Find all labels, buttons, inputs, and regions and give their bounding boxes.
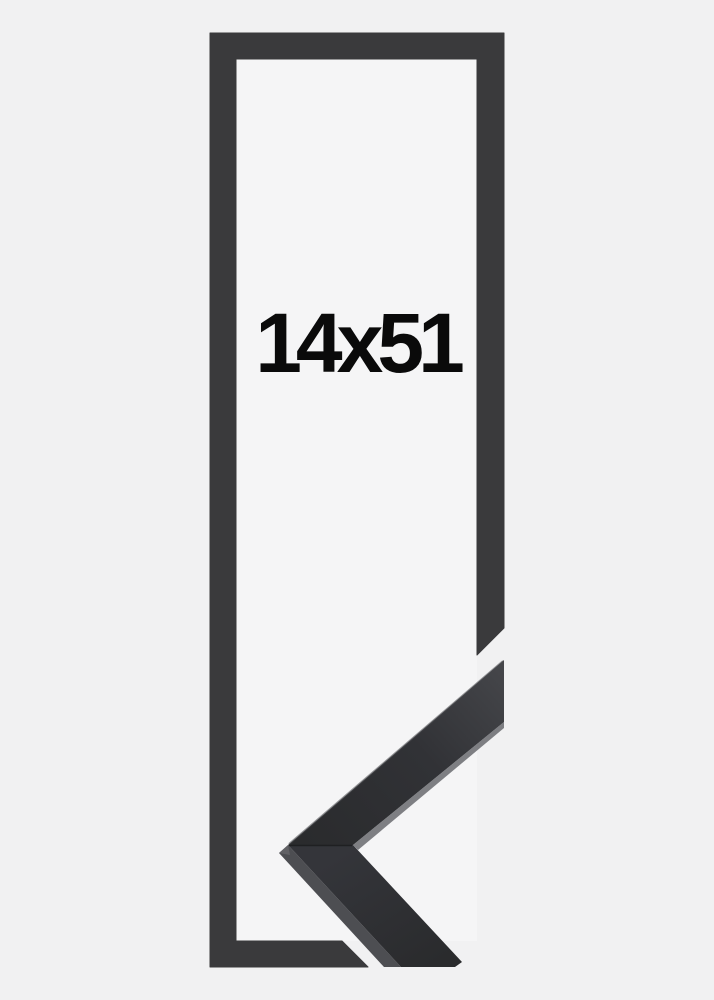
size-label: 14x51 bbox=[255, 296, 463, 390]
product-image-canvas: 14x51 bbox=[0, 0, 714, 1000]
